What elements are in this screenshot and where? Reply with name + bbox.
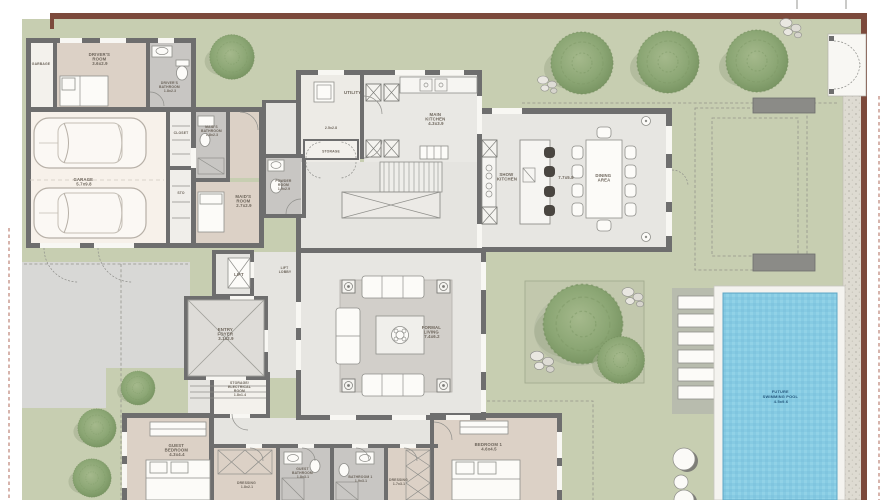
label-sto: STO	[177, 191, 185, 195]
label-dining-dims: 7.7x5.8	[558, 175, 574, 180]
label-garage: GARAGE 5.7x9.8	[73, 177, 94, 187]
planter-bottom	[753, 254, 815, 271]
boundary-wall-top	[50, 13, 867, 19]
label-entry-foyer: ENTRY FOYER 3.1x2.9	[218, 327, 235, 341]
label-utility: UTILITY	[344, 90, 361, 95]
label-lift: LIFT	[234, 272, 244, 277]
floor-closet	[170, 112, 192, 166]
floor-link-corridor	[264, 102, 298, 158]
center-table	[392, 327, 409, 344]
label-closet: CLOSET	[174, 131, 189, 135]
label-maids-room: MAID'S ROOM 2.7x2.9	[235, 194, 252, 208]
label-formal-living: FORMAL LIVING 7.4x6.2	[422, 325, 443, 339]
label-dining: DINING AREA	[595, 173, 612, 183]
sofa-top	[362, 276, 424, 298]
floor-sto	[170, 170, 192, 243]
boundary-wall-left-stub	[50, 13, 54, 29]
garden-bed	[525, 281, 645, 384]
floor-maids-room-n	[230, 112, 259, 178]
label-garbage: GARBAGE	[32, 62, 51, 66]
label-show-kitchen: SHOW KITCHEN	[497, 172, 517, 182]
planter-top	[753, 98, 815, 113]
label-utility-dims: 2.5x2.8	[325, 126, 337, 130]
drivers-toilet	[177, 66, 188, 80]
car-2	[34, 188, 146, 238]
kitchen-counter	[400, 77, 477, 93]
entry-gate	[828, 34, 866, 96]
label-storage: STORAGE	[322, 150, 340, 154]
sofa-bottom	[362, 374, 424, 396]
label-powder: POWDER ROOM 1.9x2.9	[275, 179, 292, 191]
bedroom1-dresser	[460, 421, 508, 434]
floor-lift-lobby	[214, 252, 304, 298]
floor-plan: FUTURE SWIMMING POOL 4.5x9.6	[0, 0, 890, 500]
floor-dressing-master	[388, 448, 430, 500]
gravel-path	[843, 95, 862, 500]
floor-garbage	[28, 42, 56, 108]
car-1	[34, 118, 146, 168]
floor-bedroom-hall	[214, 418, 430, 448]
floor-plan-page: FUTURE SWIMMING POOL 4.5x9.6	[0, 0, 890, 500]
